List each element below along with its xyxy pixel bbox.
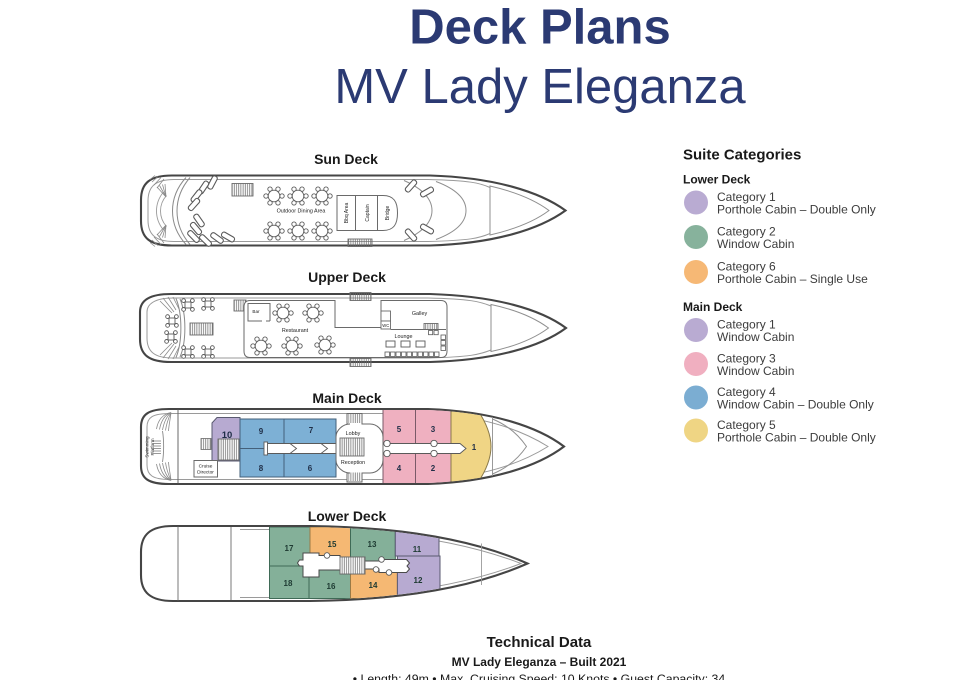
svg-text:9: 9 <box>259 427 264 436</box>
svg-text:Lobby: Lobby <box>346 431 361 437</box>
svg-text:Window Cabin: Window Cabin <box>717 330 794 344</box>
svg-text:15: 15 <box>328 540 337 549</box>
svg-text:7: 7 <box>309 426 314 435</box>
svg-text:Outdoor Dining Area: Outdoor Dining Area <box>277 209 326 215</box>
svg-text:13: 13 <box>368 540 377 549</box>
svg-text:Porthole Cabin – Single Use: Porthole Cabin – Single Use <box>717 272 868 286</box>
svg-text:Lounge: Lounge <box>395 334 413 340</box>
svg-text:WC: WC <box>382 323 389 328</box>
svg-text:3: 3 <box>431 425 436 434</box>
svg-text:Lower Deck: Lower Deck <box>683 173 751 187</box>
svg-text:MV Lady Eleganza – Built 2021: MV Lady Eleganza – Built 2021 <box>452 655 627 669</box>
svg-text:Main Deck: Main Deck <box>683 300 743 314</box>
svg-text:Bar: Bar <box>252 309 260 314</box>
svg-text:11: 11 <box>413 545 422 554</box>
svg-text:17: 17 <box>285 544 294 553</box>
svg-text:Suite Categories: Suite Categories <box>683 147 801 164</box>
svg-text:Window Cabin: Window Cabin <box>717 364 794 378</box>
svg-text:Bbq Area: Bbq Area <box>344 202 350 223</box>
svg-text:4: 4 <box>397 464 402 473</box>
svg-text:• Length: 49m • Max. Cruising: • Length: 49m • Max. Cruising Speed: 10 … <box>353 672 726 680</box>
svg-text:Director: Director <box>197 470 214 476</box>
svg-text:MV Lady Eleganza: MV Lady Eleganza <box>334 60 746 114</box>
svg-text:Technical Data: Technical Data <box>487 634 592 651</box>
svg-text:8: 8 <box>259 464 264 473</box>
svg-text:Porthole Cabin – Double Only: Porthole Cabin – Double Only <box>717 431 876 445</box>
svg-text:Galley: Galley <box>412 311 428 317</box>
svg-text:18: 18 <box>284 579 293 588</box>
svg-text:6: 6 <box>308 464 313 473</box>
svg-text:Restaurant: Restaurant <box>282 328 309 334</box>
svg-text:Lower Deck: Lower Deck <box>308 508 387 524</box>
svg-text:Bridge: Bridge <box>385 206 391 221</box>
svg-text:Main Deck: Main Deck <box>312 390 381 406</box>
svg-text:Sun Deck: Sun Deck <box>314 151 378 167</box>
svg-text:14: 14 <box>369 581 378 590</box>
svg-text:Deck Plans: Deck Plans <box>409 1 671 55</box>
svg-text:Reception: Reception <box>341 460 365 466</box>
svg-text:Window Cabin – Double Only: Window Cabin – Double Only <box>717 398 874 412</box>
svg-text:Captain: Captain <box>365 204 371 221</box>
svg-text:Upper Deck: Upper Deck <box>308 269 386 285</box>
svg-text:Cruise: Cruise <box>199 464 213 470</box>
svg-text:Swimming: Swimming <box>145 436 150 458</box>
svg-text:1: 1 <box>472 443 477 452</box>
svg-text:16: 16 <box>327 582 336 591</box>
svg-text:2: 2 <box>431 464 436 473</box>
svg-text:12: 12 <box>414 576 423 585</box>
svg-text:5: 5 <box>397 425 402 434</box>
svg-text:Porthole Cabin – Double Only: Porthole Cabin – Double Only <box>717 203 876 217</box>
svg-text:Window Cabin: Window Cabin <box>717 237 794 251</box>
